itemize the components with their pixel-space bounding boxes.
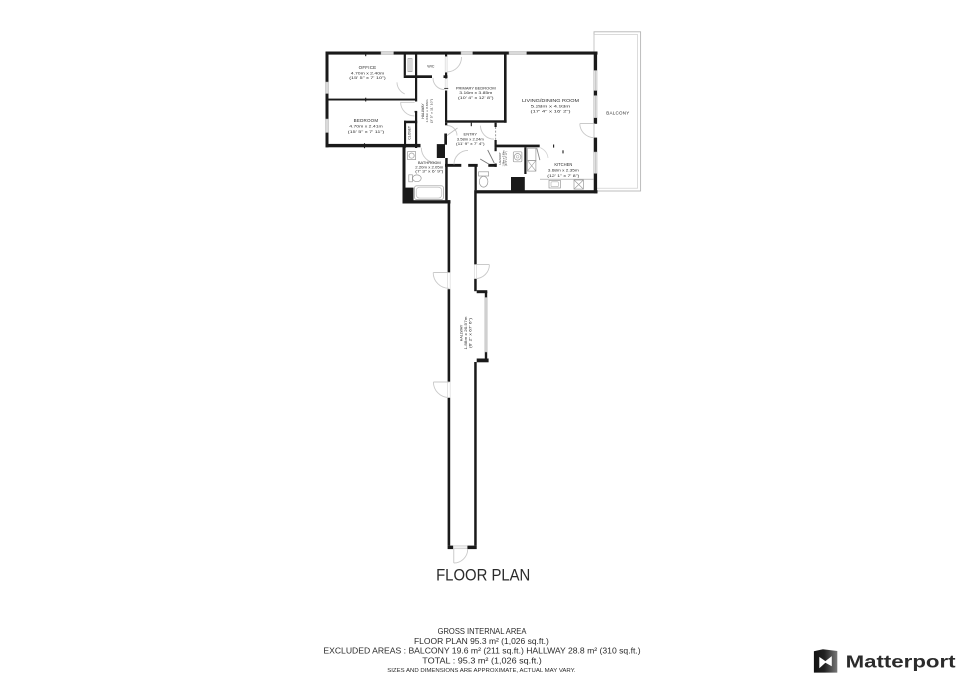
svg-text:GROSS INTERNAL AREA: GROSS INTERNAL AREA [438, 627, 527, 636]
svg-text:FLOOR PLAN 95.3 m² (1,026 sq.f: FLOOR PLAN 95.3 m² (1,026 sq.ft.) [414, 636, 549, 646]
svg-text:BALCONY: BALCONY [606, 110, 629, 115]
svg-text:(15' 5" x 7' 11"): (15' 5" x 7' 11") [348, 129, 385, 134]
svg-text:CLOSET: CLOSET [408, 126, 412, 140]
svg-text:Matterport: Matterport [846, 651, 956, 671]
svg-text:(11' 9" x 7' 4"): (11' 9" x 7' 4") [456, 141, 485, 146]
svg-text:OFFICE: OFFICE [359, 65, 377, 70]
svg-text:(6' 5" x 2' 11"): (6' 5" x 2' 11") [505, 151, 508, 166]
svg-text:FLOOR PLAN: FLOOR PLAN [436, 566, 530, 585]
svg-text:KITCHEN: KITCHEN [554, 162, 572, 167]
svg-text:WIC: WIC [427, 65, 435, 69]
svg-text:1.88m x 20.57m: 1.88m x 20.57m [464, 316, 468, 349]
svg-text:4.70m x 2.41m: 4.70m x 2.41m [349, 123, 383, 128]
svg-text:TOTAL : 95.3 m² (1,026 sq.ft.: TOTAL : 95.3 m² (1,026 sq.ft.) [422, 655, 542, 665]
svg-text:(17' 4" x 16' 2"): (17' 4" x 16' 2") [531, 108, 572, 113]
svg-text:(15' 5" x 7' 10"): (15' 5" x 7' 10") [349, 75, 386, 80]
svg-text:BEDROOM: BEDROOM [354, 118, 379, 123]
svg-text:(6' 2" x 67' 6"): (6' 2" x 67' 6") [469, 318, 473, 348]
svg-text:(3' 5" x 11' 10"): (3' 5" x 11' 10") [430, 99, 434, 124]
svg-text:SIZES AND DIMENSIONS ARE APPRO: SIZES AND DIMENSIONS ARE APPROXIMATE, AC… [387, 668, 576, 674]
svg-text:(7' 3" x 6' 9"): (7' 3" x 6' 9") [415, 169, 444, 174]
svg-text:LIVING/DINING ROOM: LIVING/DINING ROOM [522, 98, 579, 103]
svg-text:EXCLUDED AREAS : BALCONY 19.6: EXCLUDED AREAS : BALCONY 19.6 m² (211 sq… [323, 646, 641, 656]
svg-text:HALLWAY: HALLWAY [460, 324, 464, 341]
svg-text:(10' 4" x 12' 8"): (10' 4" x 12' 8") [458, 95, 494, 100]
svg-text:(12' 1" x 7' 8"): (12' 1" x 7' 8") [547, 173, 580, 178]
svg-text:3.68m x 2.35m: 3.68m x 2.35m [548, 168, 579, 173]
